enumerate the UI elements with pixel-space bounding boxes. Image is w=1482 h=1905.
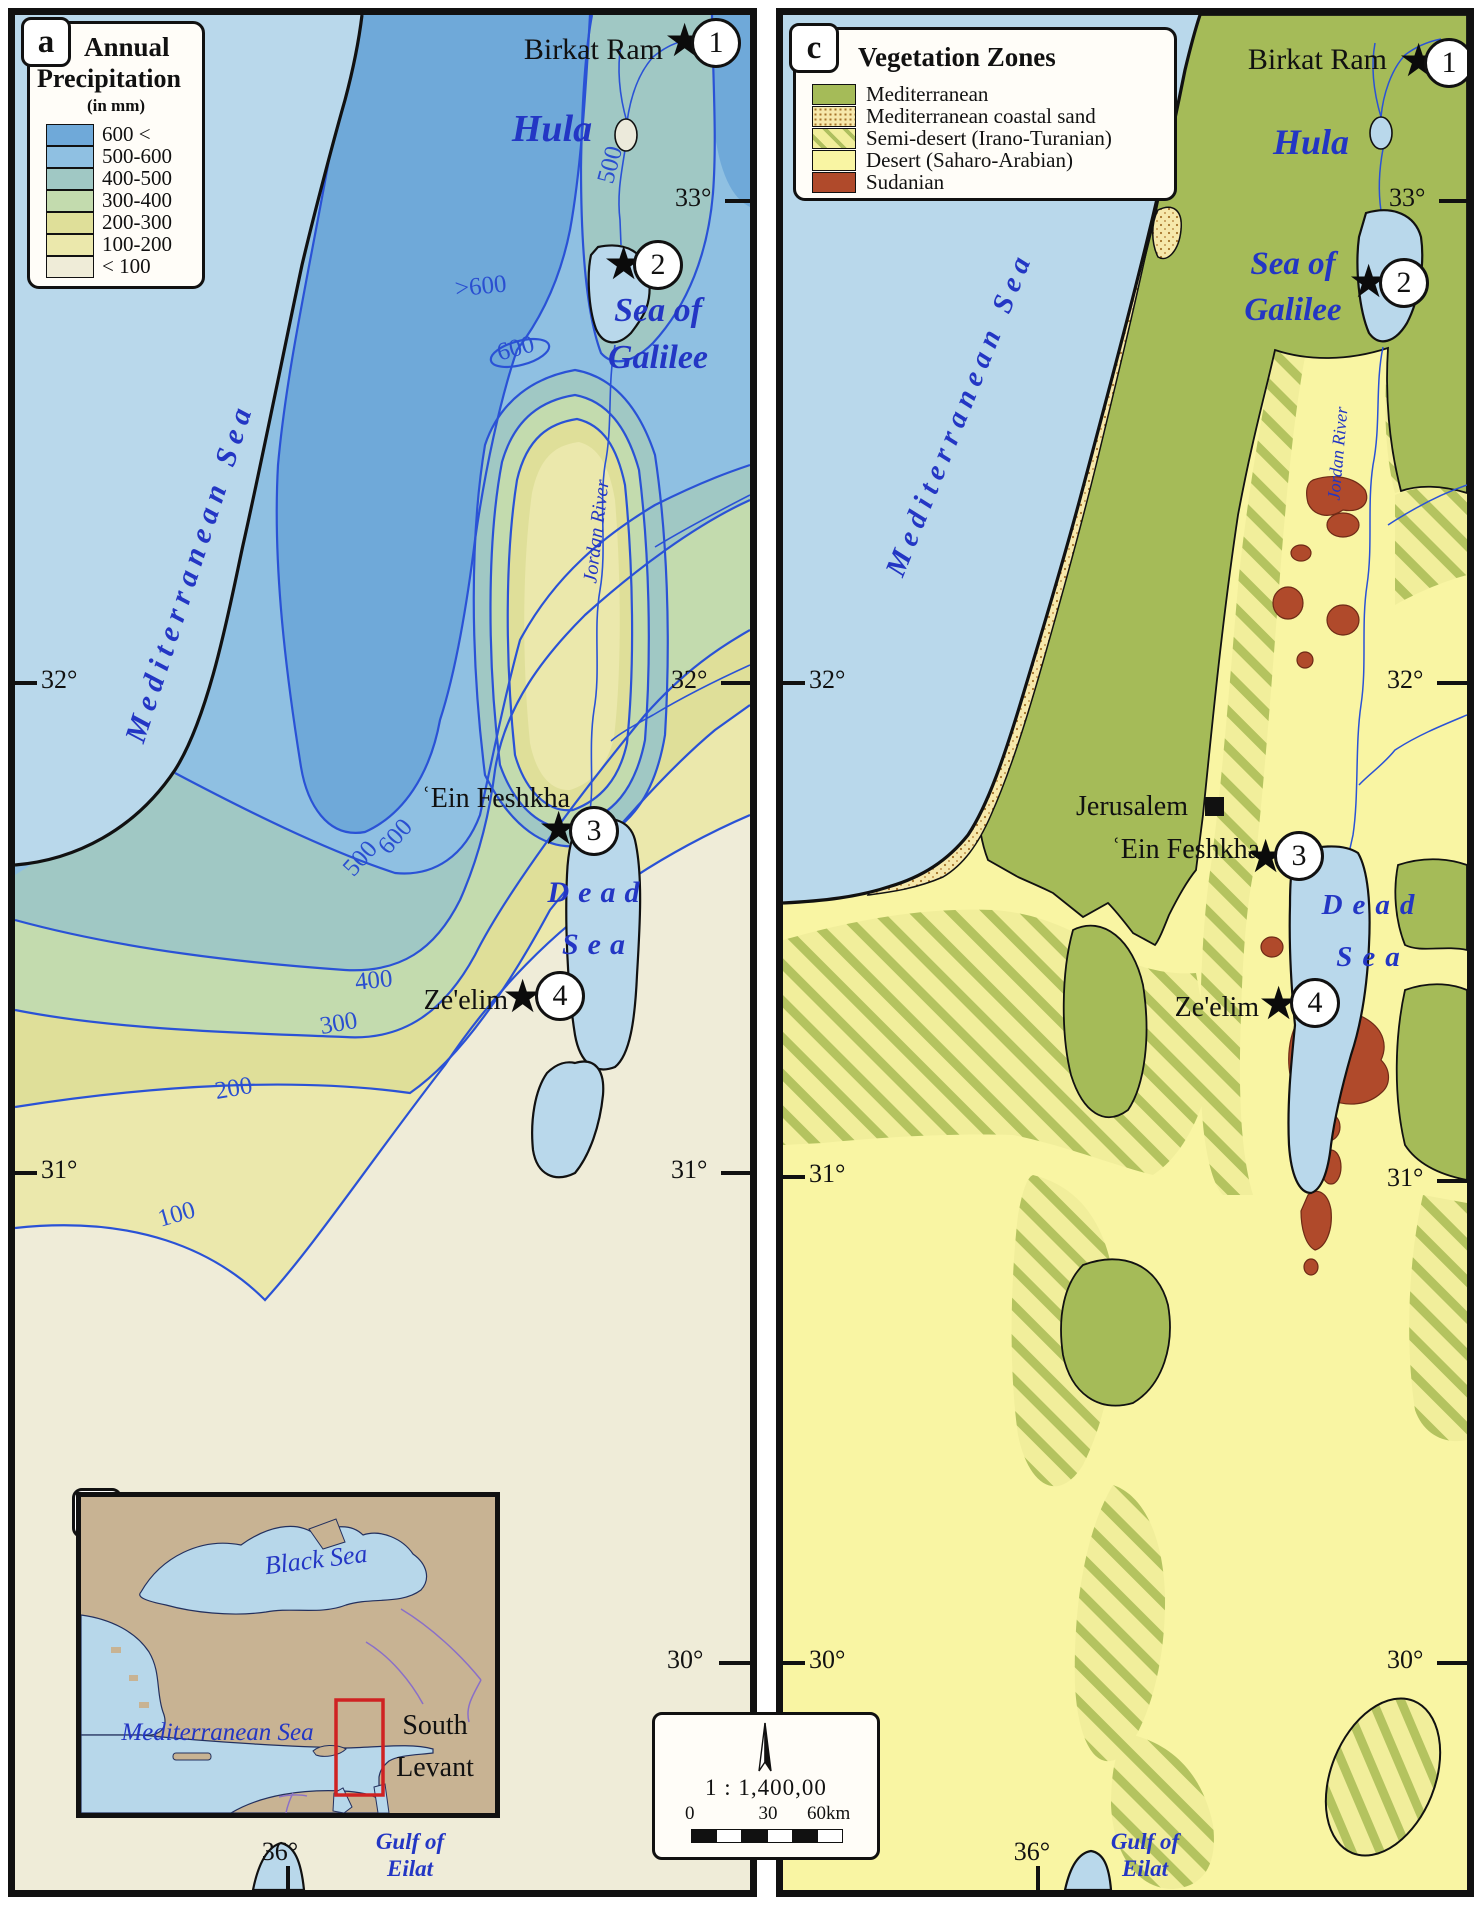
lat-32-tick-left bbox=[783, 681, 805, 685]
gulf-line1: Gulf of bbox=[376, 1829, 444, 1854]
dead-sea-label: Dead Sea bbox=[513, 867, 683, 971]
legend-swatch bbox=[812, 106, 856, 127]
north-arrow-icon bbox=[751, 1721, 779, 1773]
scale-30: 30 bbox=[753, 1803, 783, 1825]
lat-31-right: 31° bbox=[671, 1155, 707, 1185]
panel-c-tab: c bbox=[789, 23, 839, 73]
lon-36-tick bbox=[1036, 1866, 1040, 1890]
legend-label: 100-200 bbox=[102, 234, 172, 255]
legend-label: Mediterranean bbox=[866, 84, 988, 105]
contour-gt600: >600 bbox=[454, 270, 508, 303]
legend-swatch bbox=[812, 150, 856, 171]
legend-swatch bbox=[46, 190, 94, 212]
scale-bar bbox=[691, 1829, 843, 1843]
gulf-of-eilat-label: Gulf of Eilat bbox=[1080, 1828, 1210, 1882]
legend-label: 600 < bbox=[102, 124, 151, 145]
jerusalem-square-marker bbox=[1205, 797, 1224, 816]
legend-label: 400-500 bbox=[102, 168, 172, 189]
lat-32-right: 32° bbox=[671, 665, 707, 695]
dead-sea-line1: Dead bbox=[1322, 889, 1425, 921]
lat-32-left: 32° bbox=[809, 665, 845, 695]
site-number-2: 2 bbox=[1379, 258, 1429, 308]
legend-label: Semi-desert (Irano-Turanian) bbox=[866, 128, 1112, 149]
lat-30-tick-right bbox=[1437, 1661, 1467, 1665]
dead-sea-label: Dead Sea bbox=[1288, 879, 1458, 983]
south-levant-line2: Levant bbox=[396, 1752, 474, 1783]
lat-32-tick-right bbox=[1437, 681, 1467, 685]
gulf-line2: Eilat bbox=[1122, 1856, 1168, 1881]
lat-33-right: 33° bbox=[1389, 183, 1425, 213]
legend-label: < 100 bbox=[102, 256, 151, 277]
legend-swatch bbox=[46, 234, 94, 256]
site-number-2: 2 bbox=[633, 240, 683, 290]
legend-label: Sudanian bbox=[866, 172, 944, 193]
lat-31-tick-right bbox=[1437, 1179, 1467, 1183]
lat-33-tick bbox=[725, 199, 750, 203]
panel-b-inset-map: Black Sea Mediterranean Sea South Levant bbox=[76, 1492, 500, 1818]
scale-0: 0 bbox=[685, 1803, 695, 1825]
lon-36-tick bbox=[286, 1866, 290, 1890]
lat-31-tick-left bbox=[15, 1171, 37, 1175]
sea-of-galilee-line2: Galilee bbox=[1244, 292, 1341, 328]
legend-swatch bbox=[812, 128, 856, 149]
panel-c-vegetation-map: Vegetation Zones Mediterranean Mediterra… bbox=[776, 8, 1474, 1897]
sea-of-galilee-line1: Sea of bbox=[1250, 246, 1335, 282]
site-number-3: 3 bbox=[569, 806, 619, 856]
scale-box: 1 : 1,400,00 0 30 60km bbox=[652, 1712, 880, 1860]
site-label-zeelim: Ze'elim bbox=[1079, 992, 1259, 1024]
legend-swatch bbox=[46, 146, 94, 168]
lat-31-right: 31° bbox=[1387, 1163, 1423, 1193]
lat-31-tick-right bbox=[721, 1171, 750, 1175]
lat-31-left: 31° bbox=[41, 1155, 77, 1185]
legend-swatch bbox=[46, 256, 94, 278]
site-label-birkat-ram: Birkat Ram bbox=[1187, 43, 1387, 77]
lat-31-tick-left bbox=[783, 1175, 805, 1179]
lat-32-right: 32° bbox=[1387, 665, 1423, 695]
scale-ratio: 1 : 1,400,00 bbox=[655, 1775, 877, 1801]
panel-a-tab: a bbox=[21, 17, 71, 67]
dead-sea-line1: Dead bbox=[548, 876, 649, 909]
sea-of-galilee-label: Sea of Galilee bbox=[568, 287, 748, 381]
legend-title: Vegetation Zones bbox=[858, 42, 1056, 73]
site-number-4: 4 bbox=[1290, 978, 1340, 1028]
south-levant-label: South Levant bbox=[379, 1705, 491, 1789]
lat-30-right: 30° bbox=[1387, 1645, 1423, 1675]
site-number-1: 1 bbox=[691, 18, 741, 68]
lat-31-left: 31° bbox=[809, 1159, 845, 1189]
gulf-line2: Eilat bbox=[387, 1856, 433, 1881]
vegetation-legend: Vegetation Zones Mediterranean Mediterra… bbox=[793, 27, 1177, 201]
dead-sea-line2: Sea bbox=[1336, 941, 1410, 973]
figure-precipitation-vegetation-maps: { "sites": {"s1":"Birkat Ram","s2":"ʿEin… bbox=[0, 0, 1482, 1905]
legend-label: 500-600 bbox=[102, 146, 172, 167]
hula-label: Hula bbox=[1231, 121, 1391, 163]
scale-60km: 60km bbox=[807, 1803, 850, 1825]
hula-label: Hula bbox=[472, 107, 632, 151]
legend-title-2: Precipitation bbox=[37, 64, 181, 94]
legend-label: 200-300 bbox=[102, 212, 172, 233]
south-levant-line1: South bbox=[402, 1710, 467, 1741]
legend-label: 300-400 bbox=[102, 190, 172, 211]
lat-32-left: 32° bbox=[41, 665, 77, 695]
legend-label: Desert (Saharo-Arabian) bbox=[866, 150, 1073, 171]
legend-swatch bbox=[46, 124, 94, 146]
site-label-ein-feshkha: ʿEin Feshkha bbox=[1060, 834, 1260, 866]
site-label-jerusalem: Jerusalem bbox=[1008, 791, 1188, 823]
legend-swatch bbox=[812, 172, 856, 193]
lat-32-tick-left bbox=[15, 681, 37, 685]
lon-36-bottom: 36° bbox=[253, 1837, 307, 1867]
legend-subtitle: (in mm) bbox=[30, 96, 202, 116]
gulf-of-eilat-label: Gulf of Eilat bbox=[345, 1828, 475, 1882]
lat-30-tick-left bbox=[783, 1661, 805, 1665]
legend-swatch bbox=[46, 212, 94, 234]
site-label-zeelim: Ze'elim bbox=[328, 985, 508, 1017]
lat-32-tick-right bbox=[721, 681, 750, 685]
site-label-birkat-ram: Birkat Ram bbox=[503, 33, 663, 67]
inset-mediterranean-label: Mediterranean Sea bbox=[95, 1719, 340, 1747]
sea-of-galilee-line1: Sea of bbox=[614, 292, 702, 329]
lat-33-tick bbox=[1439, 199, 1467, 203]
gulf-line1: Gulf of bbox=[1111, 1829, 1179, 1854]
site-number-3: 3 bbox=[1274, 831, 1324, 881]
legend-label: Mediterranean coastal sand bbox=[866, 106, 1096, 127]
legend-title: Annual bbox=[84, 32, 170, 63]
dead-sea-line2: Sea bbox=[562, 928, 634, 961]
lat-33-right: 33° bbox=[675, 183, 711, 213]
lat-30-tick-right bbox=[719, 1661, 750, 1665]
legend-swatch bbox=[812, 84, 856, 105]
lon-36-bottom: 36° bbox=[1005, 1837, 1059, 1867]
lat-30-left: 30° bbox=[809, 1645, 845, 1675]
sea-of-galilee-line2: Galilee bbox=[608, 339, 708, 376]
legend-swatch bbox=[46, 168, 94, 190]
site-number-4: 4 bbox=[535, 971, 585, 1021]
lat-30-right: 30° bbox=[667, 1645, 703, 1675]
site-number-1: 1 bbox=[1424, 38, 1474, 88]
